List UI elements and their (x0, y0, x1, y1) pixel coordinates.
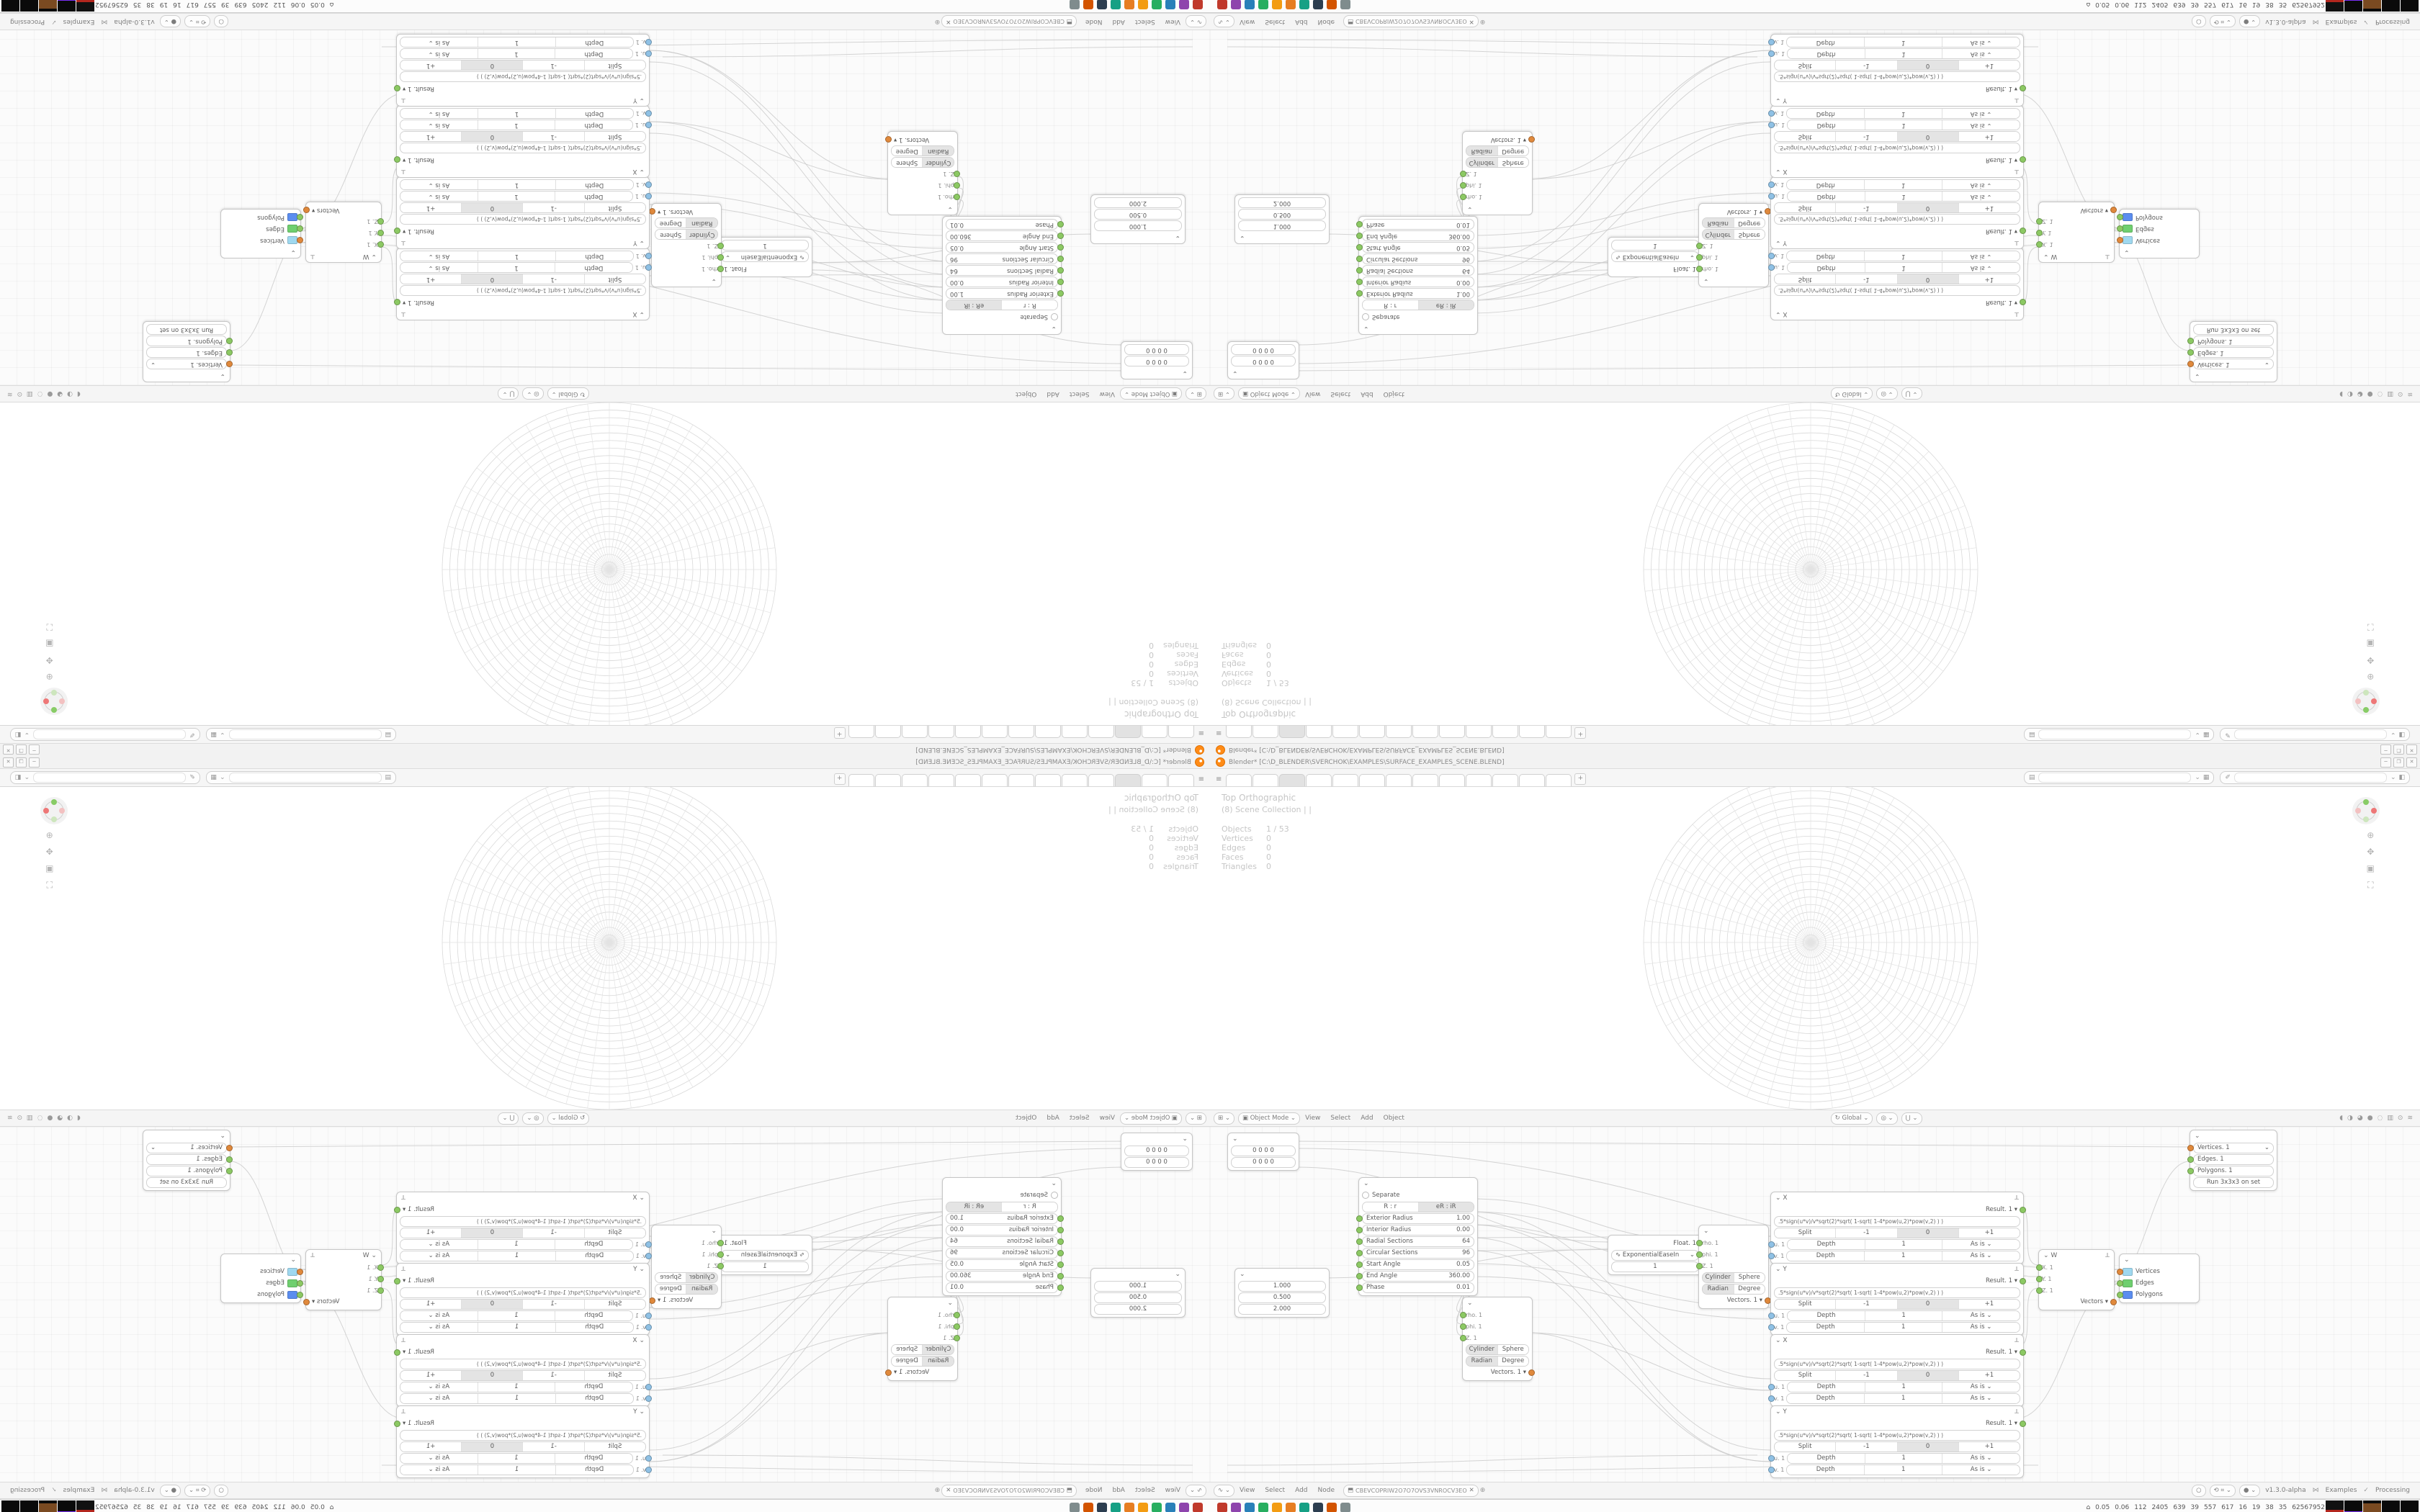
menu-node[interactable]: Node (1085, 1487, 1103, 1494)
socket-option[interactable]: Depth (1788, 1454, 1865, 1463)
value-field[interactable]: 1.000 (1094, 1281, 1182, 1292)
segment-option[interactable]: -1 (1836, 132, 1897, 142)
maximize-button[interactable]: ❐ (16, 757, 27, 768)
segment-option[interactable]: +1 (1959, 1371, 2020, 1380)
node-socket-green[interactable] (226, 1168, 233, 1174)
node-header[interactable]: ⌄ W⟂ (2042, 251, 2111, 261)
viewlayer-selector[interactable]: ✐ ⌄ ◧ (2220, 771, 2410, 784)
socket-options[interactable]: Depth1As is ⌄ (400, 1393, 634, 1404)
value-field[interactable]: 2.000 (1094, 1304, 1182, 1315)
hamburger-menu-icon[interactable]: ≡ (1216, 729, 1222, 737)
radio-button[interactable] (1362, 1192, 1369, 1199)
menu-view[interactable]: View (1165, 18, 1180, 25)
node-socket-orange[interactable] (297, 237, 303, 243)
value-field[interactable]: Radial Sections64 (1362, 1236, 1474, 1247)
viewlayer-selector[interactable]: ✐ ⌄ ◧ (2220, 728, 2410, 741)
scene-name-field[interactable] (2038, 729, 2191, 739)
workspace-tab[interactable] (1252, 774, 1278, 786)
workspace-tab[interactable] (1466, 726, 1492, 738)
workspace-tab[interactable] (928, 726, 954, 738)
socket-option[interactable]: Depth (555, 1382, 632, 1392)
taskbar-app-icon[interactable] (1245, 1503, 1255, 1512)
node-socket-green[interactable] (2117, 214, 2123, 220)
segmented-buttons[interactable]: CylinderSphere (1466, 1344, 1529, 1355)
menu-view[interactable]: View (1305, 390, 1320, 397)
node-small-values[interactable]: ⌄1.0000.5002.000 (1090, 194, 1186, 244)
node-header[interactable]: ⌄ (1231, 368, 1296, 377)
segmented-buttons[interactable]: Split-10+1 (400, 1299, 646, 1310)
processing-checkbox[interactable]: Processing (10, 1487, 45, 1494)
shading-mode-icon[interactable]: ◌ (2378, 390, 2383, 397)
socket-options[interactable]: Depth1As is ⌄ (1787, 1382, 2020, 1392)
node-socket-green[interactable] (1356, 244, 1363, 251)
segment-option[interactable]: Degree (655, 219, 686, 228)
menu-view[interactable]: View (1305, 1115, 1320, 1122)
viewlayer-selector[interactable]: ✐ ⌄ ◧ (10, 728, 200, 741)
node-header[interactable]: ⌄ (1362, 1179, 1474, 1189)
formula-field[interactable]: .5*sign(u*v)/v*sqrt(2)*sqrt( 1-sqrt( 1-4… (400, 1287, 646, 1298)
workspace-tab[interactable] (1306, 726, 1332, 738)
formula-field[interactable]: .5*sign(u*v)/v*sqrt(2)*sqrt( 1-sqrt( 1-4… (400, 286, 646, 297)
node-torus-params[interactable]: ⌄SeparateR : reR : iRExterior Radius1.00… (1358, 1177, 1478, 1296)
socket-options[interactable]: Depth1As is ⌄ (400, 120, 633, 131)
value-field[interactable]: Interior Radius0.00 (1362, 1225, 1474, 1236)
socket-option[interactable]: Depth (1787, 38, 1865, 48)
node-torus-params[interactable]: ⌄SeparateR : reR : iRExterior Radius1.00… (942, 1177, 1062, 1296)
viewport-nav-tools[interactable]: ⊕✥▣⛶ (2367, 830, 2375, 891)
node-socket-green[interactable] (2187, 338, 2194, 344)
socket-options[interactable]: Depth1As is ⌄ (400, 1453, 633, 1464)
editor-type-button[interactable]: ⊞ ⌄ (1186, 388, 1206, 400)
segmented-buttons[interactable]: Split-10+1 (1774, 1441, 2020, 1452)
pan-tool-icon[interactable]: ✥ (45, 847, 53, 857)
segment-option[interactable]: +1 (1959, 61, 2020, 71)
camera-view-icon[interactable]: ▣ (2367, 639, 2375, 649)
segment-option[interactable]: -1 (1836, 61, 1897, 71)
socket-option[interactable]: Depth (1788, 192, 1865, 202)
node-socket-blue[interactable] (645, 253, 652, 259)
camera-view-icon[interactable]: ▣ (45, 863, 53, 873)
socket-option[interactable]: Depth (1788, 1240, 1865, 1249)
menu-view[interactable]: View (1100, 390, 1115, 397)
node-socket-orange[interactable] (885, 1369, 892, 1376)
workspace-tab[interactable] (1519, 774, 1545, 786)
node-editor-canvas[interactable]: ⌄0 0 0 00 0 0 0⌄1.0000.5002.000⌄Separate… (1210, 30, 2420, 385)
value-field[interactable]: Circular Sections96 (1362, 254, 1474, 265)
taskbar-app-icon[interactable] (1111, 0, 1121, 9)
shading-mode-icon[interactable]: ≋ (2407, 390, 2413, 397)
socket-option[interactable]: Depth (1788, 121, 1865, 130)
node-header[interactable]: ⌄ W⟂ (309, 1251, 378, 1261)
taskbar-app-icon[interactable] (1327, 1503, 1337, 1512)
workspace-tab[interactable] (1279, 774, 1305, 786)
segmented-buttons[interactable]: R : reR : iR (1362, 1202, 1474, 1212)
node-socket-orange[interactable] (2187, 1145, 2194, 1151)
segment-option[interactable]: Split (1775, 61, 1836, 71)
menu-object[interactable]: Object (1384, 1115, 1404, 1122)
segment-option[interactable]: -1 (1836, 275, 1897, 284)
socket-option[interactable]: 1 (478, 1454, 555, 1463)
shading-mode-icon[interactable]: ● (2367, 1115, 2373, 1122)
add-workspace-button[interactable]: + (1574, 727, 1586, 739)
value-field[interactable]: Interior Radius0.00 (946, 277, 1058, 288)
node-header[interactable]: ⌄ (655, 276, 718, 285)
socket-option[interactable]: As is ⌄ (1942, 38, 2020, 48)
value-field[interactable]: Exterior Radius1.00 (1362, 1213, 1474, 1224)
node-header[interactable]: ⌄ (1362, 323, 1474, 333)
node-tree-selector[interactable]: ⬒ CBEVCOPRIW2O7O7OVS3VNROCV3EO ✕ (941, 16, 1077, 28)
node-socket-blue[interactable] (1768, 122, 1775, 128)
shading-mode-icon[interactable]: ◕ (57, 390, 63, 397)
segment-option[interactable]: Radian (686, 219, 718, 228)
segment-option[interactable]: Cylinder (1703, 230, 1734, 240)
color-chip[interactable] (2123, 1279, 2133, 1287)
node-socket-green[interactable] (2036, 1276, 2043, 1282)
workspace-tab[interactable] (1008, 726, 1034, 738)
shading-mode-icon[interactable]: ▥ (27, 1115, 33, 1122)
node-socket-blue[interactable] (645, 1324, 652, 1331)
node-socket-green[interactable] (1057, 1250, 1064, 1256)
node-socket-blue[interactable] (645, 50, 652, 57)
workspace-tab[interactable] (1439, 726, 1465, 738)
segment-option[interactable]: Split (1775, 204, 1836, 213)
segment-option[interactable]: Sphere (1734, 230, 1765, 240)
sv-toggle-1[interactable]: ○ (2192, 16, 2205, 28)
node-socket-green[interactable] (2020, 1421, 2026, 1427)
shading-mode-icon[interactable]: ⊙ (2398, 390, 2403, 397)
node-tree-selector[interactable]: ⬒ CBEVCOPRIW2O7O7OVS3VNROCV3EO ✕ (1343, 16, 1479, 28)
segmented-buttons[interactable]: CylinderSphere (891, 158, 954, 168)
viewport-nav-tools[interactable]: ⊕✥▣⛶ (45, 830, 53, 891)
menu-select[interactable]: Select (1070, 390, 1090, 397)
minimize-button[interactable]: ─ (29, 757, 40, 768)
node-socket-green[interactable] (1696, 1251, 1703, 1258)
segment-option[interactable]: Split (584, 204, 645, 213)
taskbar-app-icon[interactable] (1111, 1503, 1121, 1512)
segmented-buttons[interactable]: RadianDegree (1702, 218, 1765, 229)
taskbar-app-icon[interactable] (1179, 0, 1189, 9)
ortho-toggle-icon[interactable]: ⛶ (45, 880, 53, 891)
taskbar-app-icon[interactable] (1152, 1503, 1162, 1512)
node-socket-green[interactable] (2117, 1292, 2123, 1298)
segment-option[interactable]: Degree (655, 1284, 686, 1294)
node-header[interactable]: ⌄ (1466, 1299, 1529, 1308)
shading-mode-icon[interactable]: ◌ (2378, 1115, 2383, 1122)
node-editor-type-button[interactable]: ∿ ⌄ (1214, 16, 1234, 28)
segment-option[interactable]: Split (584, 275, 645, 284)
viewlayer-name-field[interactable] (33, 773, 186, 783)
close-icon[interactable]: ✕ (946, 18, 951, 25)
node-socket-green[interactable] (1460, 1312, 1466, 1318)
node-socket-green[interactable] (1057, 1238, 1064, 1245)
workspace-tab[interactable] (1088, 726, 1114, 738)
node-header[interactable]: ⌄ X⟂ (1774, 1336, 2020, 1346)
add-workspace-button[interactable]: + (834, 773, 846, 785)
segment-option[interactable]: +1 (1959, 1300, 2020, 1309)
menu-select[interactable]: Select (1330, 390, 1350, 397)
menu-add[interactable]: Add (1295, 1487, 1307, 1494)
segment-option[interactable]: Cylinder (686, 1273, 718, 1282)
viewport-3d[interactable]: Top Orthographic (8) Scene Collection | … (0, 402, 1210, 725)
close-button[interactable]: ✕ (2406, 744, 2417, 755)
workspace-tab[interactable] (955, 726, 981, 738)
socket-option[interactable]: As is ⌄ (400, 264, 478, 273)
socket-options[interactable]: Depth1As is ⌄ (1786, 251, 2020, 262)
processing-checkbox[interactable]: Processing (10, 18, 45, 25)
node-socket-green[interactable] (1356, 1273, 1363, 1279)
segment-option[interactable]: 0 (461, 275, 522, 284)
sv-toggle-3[interactable]: ● ⌄ (2239, 16, 2260, 28)
value-field[interactable]: Phase0.01 (946, 220, 1058, 230)
node-formula-x1[interactable]: ⌄ X⟂Result. 1 ▾.5*sign(u*v)/v*sqrt(2)*sq… (396, 248, 650, 320)
node-header[interactable]: ⌄ (1702, 276, 1765, 285)
shading-mode-icon[interactable]: ▥ (27, 390, 33, 397)
segment-option[interactable]: eR : iR (1419, 301, 1474, 310)
socket-option[interactable]: Depth (1787, 252, 1865, 261)
node-small-values[interactable]: ⌄1.0000.5002.000 (1090, 1268, 1186, 1318)
node-socket-orange[interactable] (226, 361, 233, 367)
node-socket-orange[interactable] (303, 207, 310, 213)
segment-option[interactable]: -1 (523, 1442, 584, 1452)
scene-selector[interactable]: ▤ ⌄ ▦ (2024, 771, 2215, 784)
node-socket-blue[interactable] (645, 1384, 652, 1390)
shading-mode-icon[interactable]: ▥ (2387, 1115, 2393, 1122)
node-socket-blue[interactable] (1768, 264, 1775, 271)
node-socket-green[interactable] (2036, 1287, 2043, 1294)
segment-option[interactable]: -1 (1836, 1442, 1897, 1452)
value-field[interactable]: 0 0 0 0 (1231, 1157, 1296, 1168)
node-socket-green[interactable] (1356, 221, 1363, 228)
node-socket-green[interactable] (717, 254, 724, 261)
value-field[interactable]: 2.000 (1094, 198, 1182, 209)
socket-option[interactable]: As is ⌄ (1942, 181, 2020, 190)
menu-object[interactable]: Object (1016, 1115, 1036, 1122)
node-socket-green[interactable] (1460, 171, 1466, 177)
menu-select[interactable]: Select (1265, 1487, 1285, 1494)
node-header[interactable]: ⌄ (1094, 1270, 1182, 1279)
segment-option[interactable]: -1 (523, 61, 584, 71)
node-formula-y2[interactable]: ⌄ Y⟂Result. 1 ▾.5*sign(u*v)/v*sqrt(2)*sq… (1770, 1405, 2024, 1478)
socket-option[interactable]: As is ⌄ (400, 181, 478, 190)
workspace-tab[interactable] (1115, 774, 1141, 786)
socket-option[interactable]: Depth (555, 109, 633, 119)
value-field[interactable]: 0.500 (1238, 1292, 1326, 1303)
segmented-buttons[interactable]: RadianDegree (655, 1284, 718, 1295)
menu-select[interactable]: Select (1135, 18, 1155, 25)
shading-mode-icon[interactable]: ◌ (37, 1115, 43, 1122)
socket-option[interactable]: As is ⌄ (1942, 1240, 2020, 1249)
menu-view[interactable]: View (1240, 1487, 1255, 1494)
node-socket-orange[interactable] (649, 208, 655, 215)
value-field[interactable]: Circular Sections96 (946, 1248, 1058, 1259)
node-header[interactable]: ⌄ (146, 371, 227, 380)
close-icon[interactable]: ✕ (1469, 1487, 1474, 1494)
camera-view-icon[interactable]: ▣ (2367, 863, 2375, 873)
segment-option[interactable]: Radian (1703, 1284, 1734, 1294)
value-field[interactable]: Interior Radius0.00 (1362, 277, 1474, 288)
mode-dropdown[interactable]: ▣ Object Mode ⌄ (1238, 1112, 1300, 1125)
socket-option[interactable]: Depth (1787, 1251, 1865, 1261)
node-socket-green[interactable] (1356, 233, 1363, 239)
segment-option[interactable]: Split (1775, 1442, 1836, 1452)
workspace-tab[interactable] (1142, 774, 1168, 786)
value-field[interactable]: 0.500 (1094, 210, 1182, 220)
node-socket-blue[interactable] (645, 1241, 652, 1248)
zoom-tool-icon[interactable]: ⊕ (2367, 672, 2375, 682)
value-field[interactable]: End Angle360.00 (946, 1271, 1058, 1282)
node-formula-y2[interactable]: ⌄ Y⟂Result. 1 ▾.5*sign(u*v)/v*sqrt(2)*sq… (1770, 34, 2024, 107)
workspace-tab[interactable] (1279, 726, 1305, 738)
segment-option[interactable]: Radian (1466, 147, 1498, 156)
node-socket-orange[interactable] (1528, 136, 1535, 143)
value-field[interactable]: End Angle360.00 (1362, 231, 1474, 242)
socket-option[interactable]: Depth (555, 181, 633, 190)
scene-selector[interactable]: ▤ ⌄ ▦ (206, 771, 397, 784)
formula-field[interactable]: .5*sign(u*v)/v*sqrt(2)*sqrt( 1-sqrt( 1-4… (1774, 215, 2020, 225)
node-header[interactable]: ⌄ Y⟂ (1774, 95, 2020, 104)
node-socket-green[interactable] (2020, 85, 2026, 91)
node-header[interactable]: ⌄ (2193, 1132, 2274, 1141)
value-field[interactable]: 0 0 0 0 (1124, 1146, 1189, 1156)
zoom-tool-icon[interactable]: ⊕ (45, 672, 53, 682)
viewport-3d[interactable]: Top Orthographic (8) Scene Collection | … (1210, 402, 2420, 725)
node-socket-green[interactable] (1356, 279, 1363, 285)
segment-option[interactable]: 0 (1898, 1300, 1959, 1309)
workspace-tab[interactable] (982, 774, 1008, 786)
segmented-buttons[interactable]: CylinderSphere (655, 1272, 718, 1283)
value-field[interactable]: Circular Sections96 (1362, 1248, 1474, 1259)
node-socket-green[interactable] (1696, 266, 1703, 272)
value-field[interactable]: ∿ ExponentialEaseIn⌄ (1611, 1250, 1699, 1261)
segment-option[interactable]: Radian (1703, 219, 1734, 228)
segmented-buttons[interactable]: RadianDegree (1466, 146, 1529, 157)
node-socket-green[interactable] (717, 1263, 724, 1269)
segment-option[interactable]: R : r (1002, 301, 1058, 310)
node-socket-blue[interactable] (1768, 193, 1775, 199)
segment-option[interactable]: Split (1775, 1228, 1836, 1238)
sv-toggle-2[interactable]: ⟲ ⌗ ⌄ (184, 16, 210, 28)
segment-option[interactable]: 0 (461, 1228, 522, 1238)
node-socket-green[interactable] (394, 1207, 400, 1213)
node-header[interactable]: ⌄ Y⟂ (1774, 238, 2020, 247)
shading-mode-icon[interactable]: ◑ (2347, 1115, 2353, 1122)
socket-option[interactable]: Depth (555, 1251, 633, 1261)
node-socket-green[interactable] (226, 1156, 233, 1163)
radio-button[interactable] (1362, 313, 1369, 320)
node-socket-green[interactable] (1057, 256, 1064, 262)
formula-field[interactable]: .5*sign(u*v)/v*sqrt(2)*sqrt( 1-sqrt( 1-4… (1774, 1359, 2020, 1369)
value-field[interactable]: Interior Radius0.00 (946, 1225, 1058, 1236)
value-field[interactable]: 2.000 (1238, 198, 1326, 209)
sv-toggle-3[interactable]: ● ⌄ (2239, 1485, 2260, 1497)
shading-mode-icon[interactable]: ◕ (2357, 1115, 2363, 1122)
node-socket-blue[interactable] (1768, 1395, 1775, 1402)
workspace-tab[interactable] (1519, 726, 1545, 738)
segmented-buttons[interactable]: RadianDegree (655, 218, 718, 229)
sv-toggle-2[interactable]: ⟲ ⌗ ⌄ (2210, 1485, 2236, 1497)
node-socket-green[interactable] (2117, 1280, 2123, 1287)
mode-dropdown[interactable]: ▣ Object Mode ⌄ (1120, 1112, 1182, 1125)
segment-option[interactable]: Degree (1498, 147, 1529, 156)
node-socket-green[interactable] (2020, 1207, 2026, 1213)
socket-option[interactable]: As is ⌄ (1942, 264, 2020, 273)
workspace-tab[interactable] (1062, 726, 1088, 738)
socket-option[interactable]: 1 (478, 1465, 555, 1475)
taskbar-app-icon[interactable] (1138, 1503, 1148, 1512)
orientation-dropdown[interactable]: ↻ Global ⌄ (547, 1112, 590, 1125)
value-field[interactable]: Start Angle0.05 (1362, 243, 1474, 253)
value-field[interactable]: 1 (1611, 240, 1699, 251)
socket-options[interactable]: Depth1As is ⌄ (1787, 120, 2020, 131)
socket-options[interactable]: Depth1As is ⌄ (400, 109, 634, 120)
segment-option[interactable]: eR : iR (946, 1202, 1002, 1212)
formula-field[interactable]: .5*sign(u*v)/v*sqrt(2)*sqrt( 1-sqrt( 1-4… (400, 143, 646, 154)
node-socket-green[interactable] (1696, 254, 1703, 261)
value-field[interactable]: Radial Sections64 (1362, 266, 1474, 276)
socket-options[interactable]: Depth1As is ⌄ (1786, 1464, 2020, 1475)
taskbar-app-icon[interactable] (1138, 0, 1148, 9)
shading-mode-icon[interactable]: ◑ (67, 1115, 73, 1122)
node-socket-green[interactable] (1460, 1335, 1466, 1341)
node-matrix-mini[interactable]: ⌄0 0 0 00 0 0 0 (1227, 1133, 1299, 1171)
segment-option[interactable]: Split (1775, 1371, 1836, 1380)
snap-dropdown[interactable]: ◎ ⌄ (522, 1112, 543, 1125)
node-vector-polar-1[interactable]: ⌄rho. 1phi. 1Z. 1CylinderSphereRadianDeg… (651, 1225, 722, 1309)
menu-object[interactable]: Object (1016, 390, 1036, 397)
taskbar-app-icon[interactable] (1217, 0, 1227, 9)
socket-option[interactable]: As is ⌄ (400, 121, 478, 130)
segment-option[interactable]: +1 (1959, 275, 2020, 284)
taskbar-app-icon[interactable] (1193, 1503, 1203, 1512)
socket-option[interactable]: 1 (1865, 1465, 1942, 1475)
segment-option[interactable]: Sphere (892, 1345, 923, 1354)
segment-option[interactable]: +1 (1959, 204, 2020, 213)
segment-option[interactable]: Split (584, 1442, 645, 1452)
menu-add[interactable]: Add (1112, 1487, 1124, 1494)
workspace-tab[interactable] (1492, 726, 1518, 738)
node-socket-green[interactable] (2036, 1264, 2043, 1271)
workspace-tab[interactable] (1142, 726, 1168, 738)
segment-option[interactable]: 0 (461, 61, 522, 71)
node-socket-blue[interactable] (645, 181, 652, 188)
shading-mode-icon[interactable]: ⊙ (17, 390, 23, 397)
segment-option[interactable]: Degree (1498, 1356, 1529, 1366)
workspace-tab[interactable] (1359, 774, 1385, 786)
node-vector-polar-1[interactable]: ⌄rho. 1phi. 1Z. 1CylinderSphereRadianDeg… (1698, 203, 1769, 287)
segment-option[interactable]: 0 (461, 132, 522, 142)
segment-option[interactable]: Split (584, 61, 645, 71)
taskbar-app-icon[interactable] (1124, 0, 1134, 9)
segmented-buttons[interactable]: R : reR : iR (946, 1202, 1058, 1212)
socket-option[interactable]: 1 (478, 109, 555, 119)
node-socket-green[interactable] (377, 1276, 384, 1282)
zoom-tool-icon[interactable]: ⊕ (45, 830, 53, 840)
node-formula-x2[interactable]: ⌄ X⟂Result. 1 ▾.5*sign(u*v)/v*sqrt(2)*sq… (396, 105, 650, 178)
scene-selector[interactable]: ▤ ⌄ ▦ (2024, 728, 2215, 741)
node-formula-y1[interactable]: ⌄ Y⟂Result. 1 ▾.5*sign(u*v)/v*sqrt(2)*sq… (396, 176, 650, 249)
socket-option[interactable]: Depth (555, 1311, 632, 1320)
mode-dropdown[interactable]: ▣ Object Mode ⌄ (1238, 388, 1300, 400)
segmented-buttons[interactable]: Split-10+1 (1774, 1370, 2020, 1381)
socket-option[interactable]: 1 (478, 1323, 555, 1332)
taskbar-app-icon[interactable] (1165, 1503, 1175, 1512)
workspace-tab[interactable] (1332, 726, 1358, 738)
viewlayer-name-field[interactable] (2234, 729, 2387, 739)
segmented-buttons[interactable]: R : reR : iR (946, 300, 1058, 311)
node-header[interactable]: ⌄ X⟂ (400, 1336, 646, 1346)
segment-option[interactable]: Degree (1734, 219, 1765, 228)
shading-mode-icon[interactable]: ≋ (2407, 1115, 2413, 1122)
